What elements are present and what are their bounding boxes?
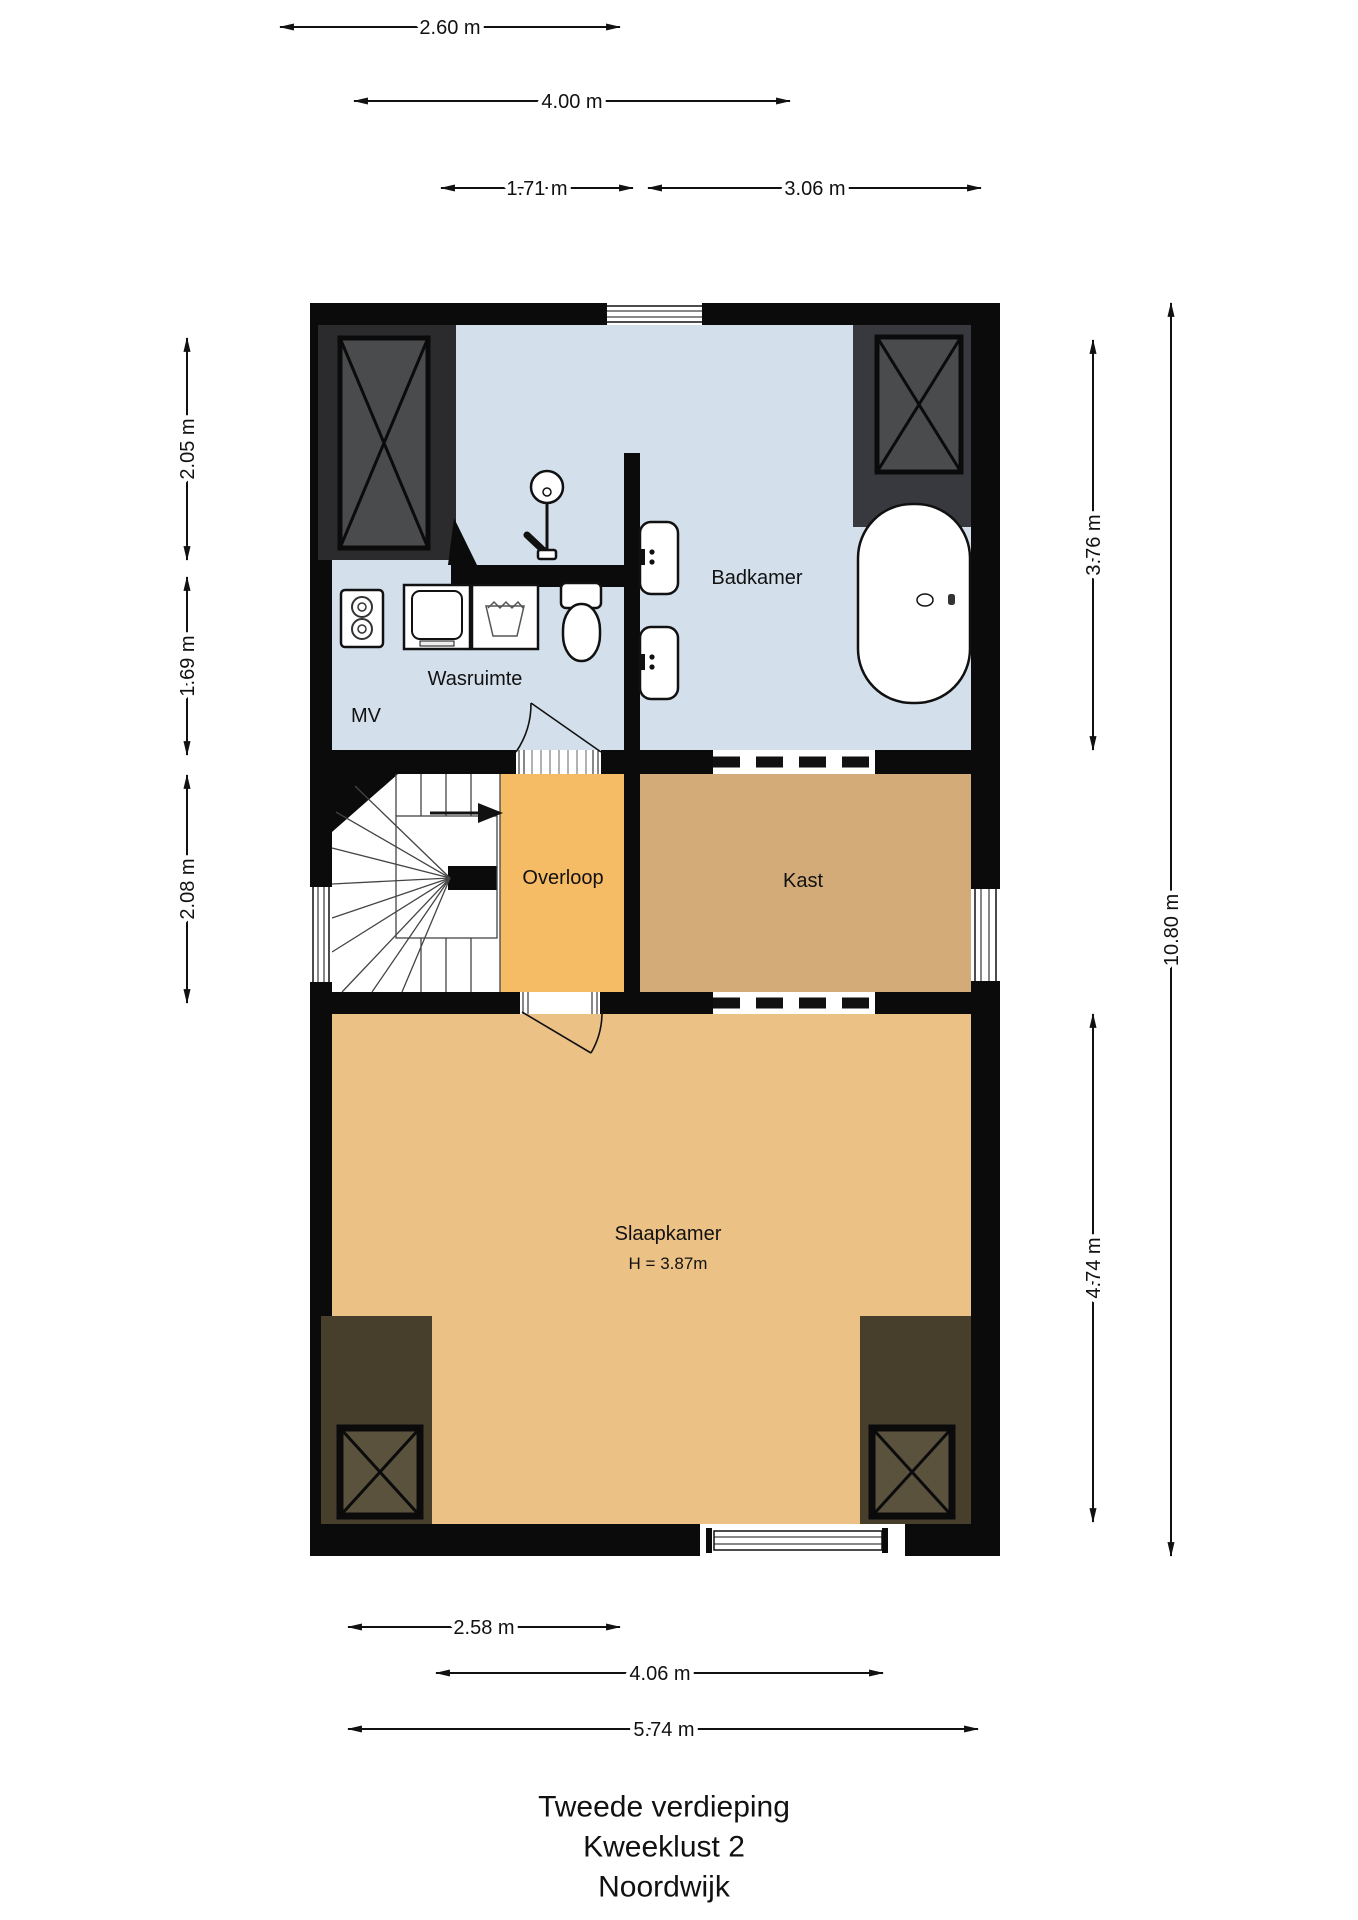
wall-vertical-divider (624, 453, 640, 1014)
shaft-top-right (853, 325, 971, 527)
label-wasruimte: Wasruimte (428, 668, 523, 690)
label-kast: Kast (783, 870, 823, 892)
floorplan-page: Badkamer Wasruimte MV Overloop Kast Slaa… (0, 0, 1358, 1920)
wall-top-left (310, 303, 602, 325)
dimension-label: 5.74 m (633, 1719, 694, 1741)
wall-right-lower (971, 986, 1000, 1556)
bathtub-icon (858, 504, 970, 703)
toilet-icon (561, 583, 601, 661)
sliding-door-kast-slaapkamer (713, 992, 875, 1014)
shaft-bottom-left (321, 1316, 432, 1524)
dimension-label: 1.71 m (506, 178, 567, 200)
wall-top-right (707, 303, 1000, 325)
window-left (310, 882, 332, 987)
washbasin-icon (640, 522, 678, 594)
dimension-label: 3.76 m (1083, 514, 1105, 575)
dimension-label: 2.60 m (419, 17, 480, 39)
wall-wasruimte-south (332, 750, 516, 774)
dimension-label: 4.00 m (541, 91, 602, 113)
dimension-label: 10.80 m (1161, 894, 1183, 966)
wall-kast-south-left (600, 992, 713, 1014)
window-bottom (700, 1524, 905, 1556)
window-top (602, 303, 707, 325)
floorplan-drawing: Badkamer Wasruimte MV Overloop Kast Slaa… (0, 0, 1358, 1920)
wall-kast-south-right (875, 992, 971, 1014)
wall-stair-south (332, 992, 520, 1014)
label-slaapkamer: Slaapkamer (615, 1223, 722, 1245)
sliding-door-badkamer-kast (713, 750, 875, 774)
dimension-label: 2.08 m (177, 858, 199, 919)
title-floor: Tweede verdieping (538, 1791, 790, 1824)
wall-badkamer-south-right (873, 750, 971, 774)
wall-bottom-right (905, 1524, 1000, 1556)
dimension-label: 4.74 m (1083, 1237, 1105, 1298)
label-mv: MV (351, 705, 382, 727)
ventilation-unit-icon (341, 590, 383, 647)
dimension-label: 3.06 m (784, 178, 845, 200)
washbasin-icon (640, 627, 678, 699)
washing-machine-icon (404, 585, 470, 649)
title-block: Tweede verdieping Kweeklust 2 Noordwijk (538, 1791, 790, 1904)
dimension-label: 2.05 m (177, 418, 199, 479)
label-overloop: Overloop (522, 867, 603, 889)
wall-badkamer-south-left (601, 750, 715, 774)
stair-newel-post (448, 866, 497, 890)
label-ceiling-height: H = 3.87m (629, 1254, 708, 1273)
dimension-label: 2.58 m (453, 1617, 514, 1639)
window-right (971, 884, 1000, 986)
shaft-top-left (318, 325, 477, 565)
dimension-label: 4.06 m (629, 1663, 690, 1685)
wall-shower (451, 565, 640, 587)
title-city: Noordwijk (598, 1871, 731, 1904)
label-badkamer: Badkamer (711, 567, 802, 589)
wall-right-upper (971, 303, 1000, 884)
shaft-bottom-right (860, 1316, 971, 1524)
title-address: Kweeklust 2 (583, 1831, 745, 1864)
wall-bottom-left (310, 1524, 700, 1556)
dimension-label: 1.69 m (177, 635, 199, 696)
laundry-basket-icon (472, 585, 538, 649)
